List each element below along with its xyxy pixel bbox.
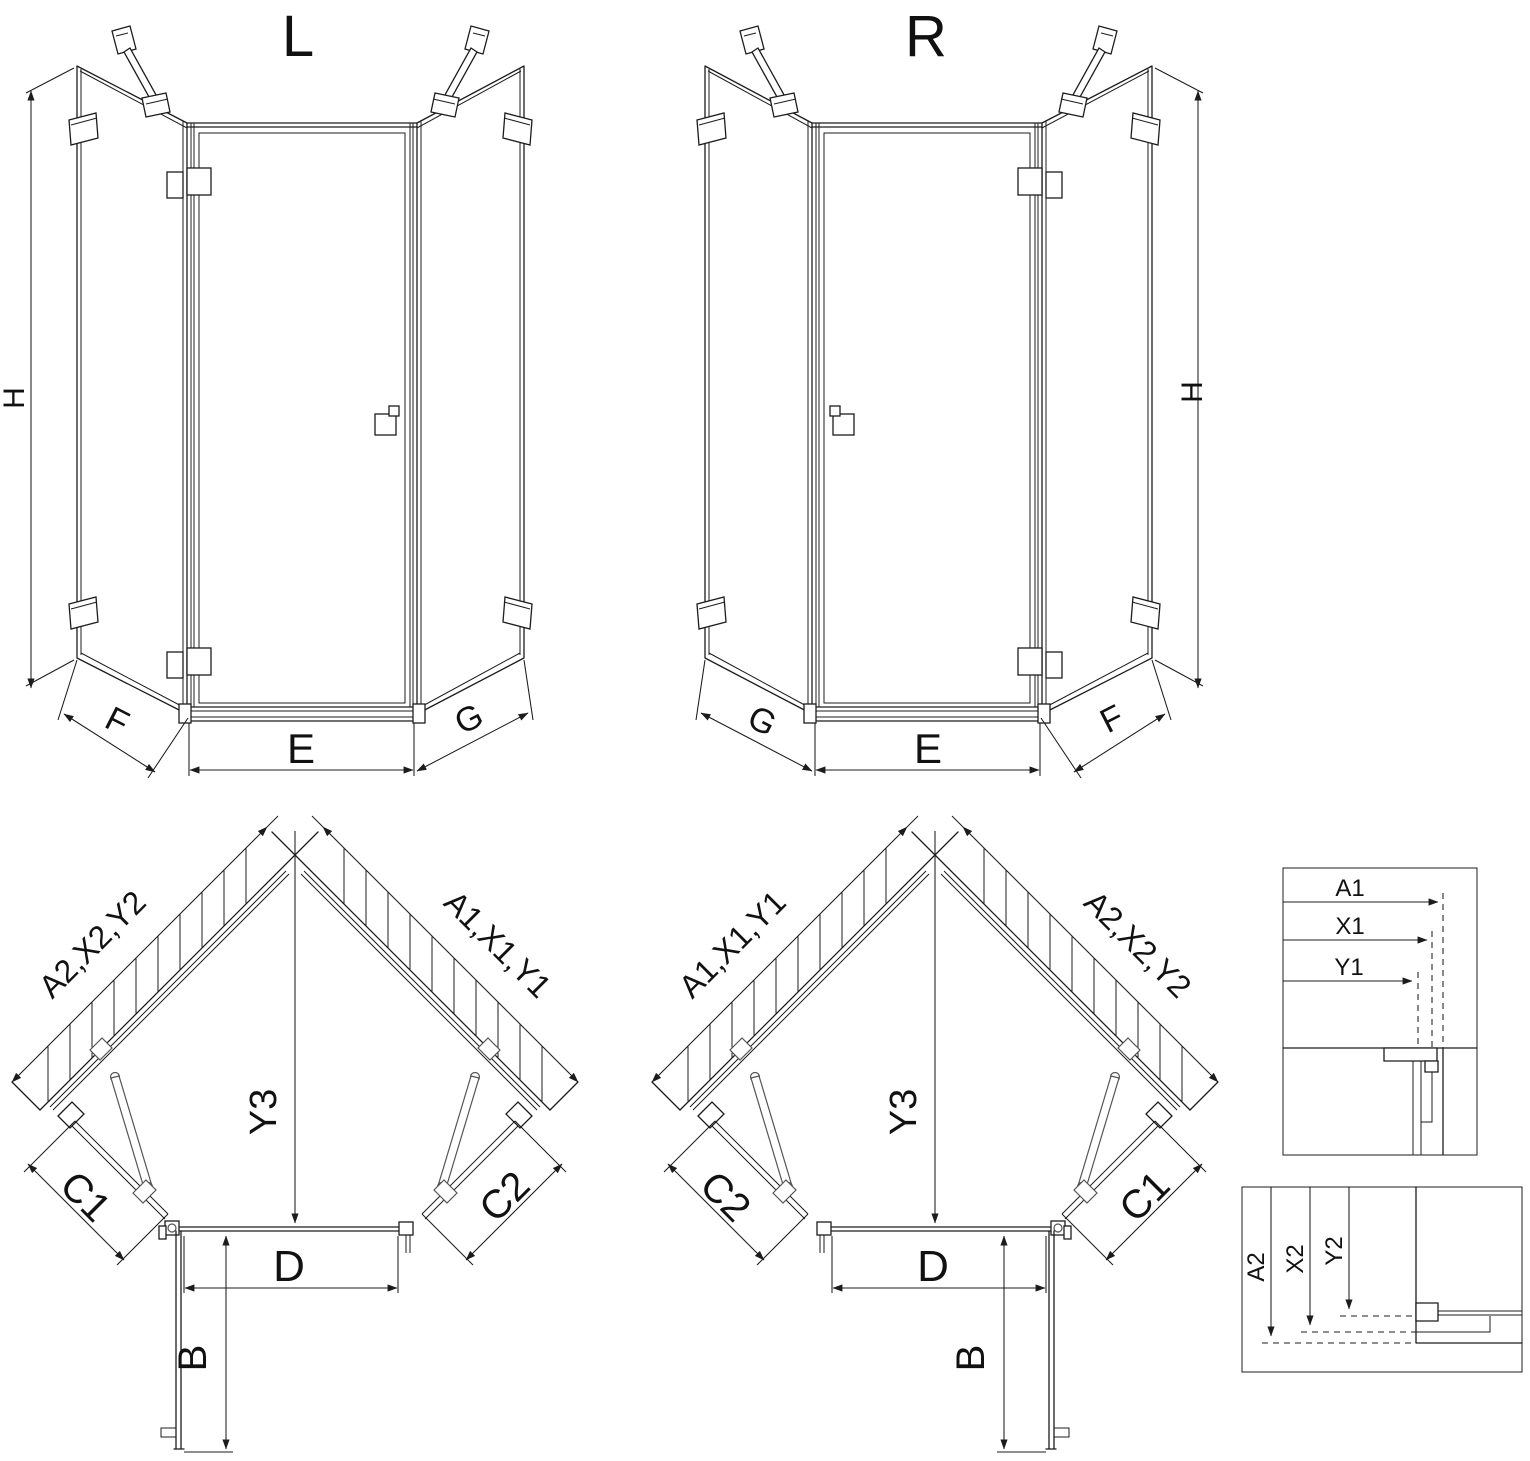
dim-label-e-right: E: [914, 725, 942, 772]
detail-label-a1: A1: [1335, 875, 1364, 902]
dim-label-wall-left-planR: A1,X1,Y1: [672, 884, 793, 1005]
detail-box-a1x1y1: A1 X1 Y1: [1283, 868, 1477, 1155]
dim-label-c1-planR: C1: [1111, 1163, 1178, 1230]
dim-label-y3-planL: Y3: [243, 1089, 285, 1135]
detail-label-x1: X1: [1335, 913, 1364, 940]
view-iso-left: L H F E G: [0, 4, 533, 778]
dim-label-h-left: H: [0, 387, 31, 409]
view-left-title: L: [282, 4, 314, 69]
plan-view-right: A1,X1,Y1 A2,X2,Y2 Y3 C2 C1 D B: [652, 816, 1218, 1452]
plan-lineart-right: [652, 816, 1218, 1452]
dim-label-g-left: G: [449, 696, 490, 742]
dim-label-e-left: E: [287, 725, 315, 772]
diagram-page: L H F E G R H G E F A2,X2,Y2 A1,X1,Y1 Y3…: [0, 0, 1530, 1461]
dim-label-b-planR: B: [949, 1345, 993, 1372]
dim-label-d-planR: D: [917, 1242, 949, 1291]
plan-view-left: A2,X2,Y2 A1,X1,Y1 Y3 C1 C2 D B: [12, 816, 578, 1452]
detail-label-y1: Y1: [1334, 954, 1363, 981]
detail-label-y2: Y2: [1321, 1236, 1348, 1265]
dim-label-wall-right-planR: A2,X2,Y2: [1077, 884, 1198, 1005]
plan-lineart-left: [12, 816, 578, 1452]
dim-label-b-planL: B: [171, 1345, 215, 1372]
dim-label-d-planL: D: [273, 1242, 305, 1291]
dim-label-y3-planR: Y3: [883, 1089, 925, 1135]
dim-label-f-left: F: [99, 700, 135, 743]
dim-label-h-right: H: [1176, 381, 1209, 403]
detail-box-a2x2y2: A2 X2 Y2: [1242, 1187, 1522, 1372]
dim-label-wall-left-planL: A2,X2,Y2: [32, 884, 153, 1005]
view-right-title: R: [905, 4, 947, 69]
dim-label-c2-planL: C2: [471, 1163, 538, 1230]
dim-label-c2-planR: C2: [692, 1163, 759, 1230]
iso-enclosure-lineart-left: [26, 26, 533, 778]
view-iso-right: R H G E F: [696, 4, 1209, 778]
dim-label-wall-right-planL: A1,X1,Y1: [437, 884, 558, 1005]
dim-label-f-right: F: [1094, 698, 1130, 741]
dim-label-c1-planL: C1: [52, 1163, 119, 1230]
technical-drawing: L H F E G R H G E F A2,X2,Y2 A1,X1,Y1 Y3…: [0, 0, 1530, 1461]
detail-label-a2: A2: [1243, 1252, 1270, 1281]
detail-label-x2: X2: [1282, 1244, 1309, 1273]
iso-enclosure-lineart-right: [696, 26, 1203, 778]
